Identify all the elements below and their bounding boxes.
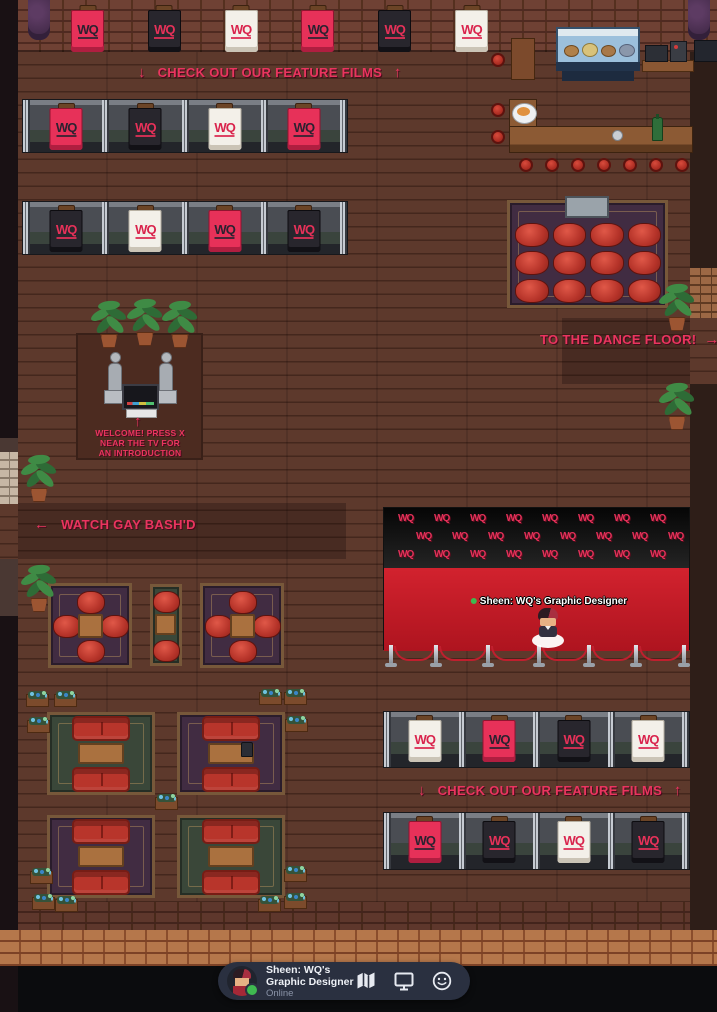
rail-panel: WQ — [466, 813, 534, 869]
sofa — [202, 819, 260, 844]
press-wall-wq-logo: WQ — [434, 513, 449, 524]
plant-pot — [669, 317, 686, 331]
rail-post — [102, 202, 109, 254]
player-avatar — [530, 604, 566, 648]
banner-body: WQ — [408, 720, 441, 762]
up-arrow-icon: ↑ — [394, 64, 402, 81]
press-wall-wq-logo: WQ — [614, 549, 629, 560]
pouf-seat — [229, 640, 257, 663]
left-arrow-icon: ← — [34, 516, 49, 533]
kettle — [241, 742, 253, 757]
rail-panel: WQ — [466, 712, 534, 767]
flower-box — [284, 896, 307, 909]
banner-body: WQ — [301, 10, 334, 52]
banner-body: WQ — [50, 108, 83, 150]
plant-pot — [31, 598, 48, 612]
wq-film-banner-dark: WQ — [148, 5, 181, 52]
pouf-seat — [253, 615, 281, 638]
press-wall-wq-logo: WQ — [650, 513, 665, 524]
wq-film-banner-white: WQ — [208, 103, 241, 150]
bar-stool — [649, 158, 663, 172]
banner-tagline — [489, 848, 509, 850]
poster-rail-c: WQWQWQWQ — [383, 711, 690, 768]
plant-pot — [101, 334, 118, 348]
banner-body: WQ — [557, 821, 590, 863]
player-info: Sheen: WQ's Graphic Designer Online — [266, 964, 354, 999]
espresso-station — [694, 40, 717, 62]
banner-tagline — [294, 135, 314, 137]
pastry — [619, 44, 635, 57]
wq-logo: WQ — [154, 24, 174, 36]
viewing-seat — [628, 279, 662, 303]
banner-tagline — [215, 237, 235, 239]
bottom-front-wall — [0, 930, 717, 966]
rail-post — [608, 712, 615, 767]
wq-film-banner-dark: WQ — [483, 816, 516, 863]
press-wall-wq-logo: WQ — [470, 549, 485, 560]
press-wall-wq-logo: WQ — [488, 531, 503, 542]
bar-stool — [491, 103, 505, 117]
banner-tagline — [638, 848, 658, 850]
potted-plant — [163, 298, 197, 348]
left-door-floor — [0, 504, 18, 559]
rail-post — [459, 813, 466, 869]
banner-tagline — [78, 37, 98, 39]
hanging-plant — [688, 0, 710, 40]
sign-feature-films-top: ↓ CHECK OUT OUR FEATURE FILMS ↑ — [138, 64, 402, 81]
pastry — [582, 43, 598, 57]
banner-body: WQ — [208, 108, 241, 150]
wq-logo: WQ — [135, 224, 155, 236]
sofa — [72, 716, 130, 741]
banner-body: WQ — [225, 10, 258, 52]
rail-panel: WQ — [268, 202, 340, 254]
left-door-brick — [0, 452, 18, 504]
pastry — [564, 45, 579, 57]
viewing-seat — [515, 251, 549, 275]
banner-body: WQ — [287, 108, 320, 150]
banner-body: WQ — [129, 108, 162, 150]
flower-box — [54, 694, 77, 707]
emoji-icon[interactable] — [430, 969, 454, 993]
wq-logo: WQ — [638, 734, 658, 746]
display-case-front — [562, 71, 634, 81]
flower-box — [32, 897, 55, 910]
flower-box — [259, 692, 282, 705]
wq-film-banner-pink: WQ — [483, 715, 516, 762]
pouf-seat — [153, 640, 180, 662]
wq-film-banner-dark: WQ — [632, 816, 665, 863]
stanchion-post — [682, 645, 686, 664]
banner-body: WQ — [378, 10, 411, 52]
player-toolbar[interactable]: Sheen: WQ's Graphic Designer Online — [218, 962, 470, 1000]
poster-rail-d: WQWQWQWQ — [383, 812, 690, 870]
display-case-top — [558, 29, 638, 36]
stanchion-post — [389, 645, 393, 664]
viewing-seat — [553, 279, 587, 303]
poster-rail-a: WQWQWQWQ — [22, 99, 348, 153]
viewing-seat — [628, 223, 662, 247]
banner-tagline — [462, 37, 482, 39]
rail-panel: WQ — [30, 100, 102, 152]
flower-box — [30, 871, 53, 884]
wq-logo: WQ — [564, 835, 584, 847]
online-dot — [471, 598, 477, 604]
coffee-table — [208, 846, 254, 867]
wq-film-banner-pink: WQ — [287, 103, 320, 150]
banner-tagline — [135, 237, 155, 239]
press-wall-wq-logo: WQ — [542, 549, 557, 560]
plant-pot — [31, 488, 48, 502]
wq-logo: WQ — [308, 24, 328, 36]
online-status-dot — [245, 983, 259, 997]
cafe-table — [155, 614, 176, 635]
wq-film-banner-dark: WQ — [287, 205, 320, 252]
cafe-table — [230, 614, 255, 638]
flower-box — [155, 797, 178, 810]
bar-stool — [491, 130, 505, 144]
rail-panel: WQ — [268, 100, 340, 152]
press-wall-logo-panel: WQWQWQWQWQWQWQWQWQWQWQWQWQWQWQWQWQWQWQWQ… — [384, 508, 689, 568]
hanging-plant — [28, 0, 50, 40]
banner-tagline — [564, 747, 584, 749]
sofa — [202, 767, 260, 792]
stanchion-rope — [439, 646, 487, 661]
rail-post — [459, 712, 466, 767]
press-wall-wq-logo: WQ — [452, 531, 467, 542]
press-wall-wq-logo: WQ — [668, 531, 683, 542]
rail-post — [182, 202, 189, 254]
rail-panel: WQ — [391, 813, 459, 869]
press-wall-wq-logo: WQ — [434, 549, 449, 560]
banner-body: WQ — [455, 10, 488, 52]
rail-post — [682, 712, 689, 767]
wq-logo: WQ — [294, 224, 314, 236]
press-wall-wq-logo: WQ — [560, 531, 575, 542]
rail-post — [261, 202, 268, 254]
banner-body: WQ — [483, 720, 516, 762]
pouf-seat — [77, 640, 105, 663]
banner-body: WQ — [557, 720, 590, 762]
banner-tagline — [215, 135, 235, 137]
potted-plant — [660, 281, 694, 331]
wq-logo: WQ — [56, 224, 76, 236]
bar-stool — [571, 158, 585, 172]
press-wall-wq-logo: WQ — [398, 549, 413, 560]
cafe-table — [78, 614, 103, 638]
press-wall-wq-logo: WQ — [398, 513, 413, 524]
food-display-case — [556, 27, 640, 71]
flower-box — [26, 694, 49, 707]
virtual-space-viewport: WQWQWQWQWQWQ ↓ CHECK OUT OUR FEATURE FIL… — [0, 0, 717, 1012]
viewing-seat — [590, 279, 624, 303]
sofa — [72, 870, 130, 895]
wq-film-banner-white: WQ — [408, 715, 441, 762]
press-wall-wq-logo: WQ — [506, 549, 521, 560]
rail-panel: WQ — [540, 813, 608, 869]
bar-stool — [597, 158, 611, 172]
banner-tagline — [638, 747, 658, 749]
viewing-seat — [515, 223, 549, 247]
banner-body: WQ — [129, 210, 162, 252]
player-name: Sheen: WQ's Graphic Designer — [266, 964, 354, 988]
cup — [612, 130, 623, 141]
wq-film-banner-pink: WQ — [50, 103, 83, 150]
viewing-seat — [590, 251, 624, 275]
banner-tagline — [564, 848, 584, 850]
wq-film-banner-white: WQ — [225, 5, 258, 52]
rail-panel: WQ — [391, 712, 459, 767]
press-wall-wq-logo: WQ — [596, 531, 611, 542]
press-wall-wq-logo: WQ — [470, 513, 485, 524]
wq-film-banner-white: WQ — [632, 715, 665, 762]
rail-panel: WQ — [109, 100, 181, 152]
wq-logo: WQ — [564, 734, 584, 746]
sofa — [72, 767, 130, 792]
player-avatar-chip[interactable] — [227, 966, 257, 996]
microwave — [645, 45, 668, 62]
bar-pillar — [511, 38, 535, 80]
banner-body: WQ — [483, 821, 516, 863]
intro-tv[interactable] — [122, 384, 159, 410]
rail-post — [23, 202, 30, 254]
wq-logo: WQ — [384, 24, 404, 36]
player-overhead-name: Sheen: WQ's Graphic Designer — [471, 596, 627, 607]
wq-logo: WQ — [638, 835, 658, 847]
pouf-seat — [101, 615, 129, 638]
wq-logo: WQ — [231, 24, 251, 36]
plant-pot — [137, 332, 154, 346]
flower-box — [55, 899, 78, 912]
poster-rail-b: WQWQWQWQ — [22, 201, 348, 255]
wq-film-banner-pink: WQ — [208, 205, 241, 252]
wq-logo: WQ — [415, 734, 435, 746]
right-door-floor — [690, 318, 717, 384]
food-plate — [512, 103, 537, 124]
press-wall-wq-logo: WQ — [632, 531, 647, 542]
banner-body: WQ — [71, 10, 104, 52]
potted-plant — [128, 296, 162, 346]
potted-plant — [22, 562, 56, 612]
sofa — [202, 870, 260, 895]
pastry — [601, 45, 616, 57]
sofa — [202, 716, 260, 741]
viewing-screen — [565, 196, 609, 218]
banner-body: WQ — [287, 210, 320, 252]
banner-tagline — [56, 237, 76, 239]
wq-logo: WQ — [415, 835, 435, 847]
press-wall-wq-logo: WQ — [578, 549, 593, 560]
sign-dance-floor: TO THE DANCE FLOOR! → — [540, 331, 717, 348]
rail-panel: WQ — [615, 712, 683, 767]
viewing-seat — [553, 223, 587, 247]
bar-stool — [491, 53, 505, 67]
flower-box — [285, 719, 308, 732]
stanchion-post — [434, 645, 438, 664]
banner-tagline — [231, 37, 251, 39]
stanchion-post — [486, 645, 490, 664]
rail-post — [340, 100, 347, 152]
banner-tagline — [415, 747, 435, 749]
rail-panel: WQ — [189, 100, 261, 152]
wq-film-banner-dark: WQ — [557, 715, 590, 762]
wq-logo: WQ — [489, 835, 509, 847]
banner-body: WQ — [408, 821, 441, 863]
potted-plant — [92, 298, 126, 348]
right-wall — [690, 52, 717, 930]
avatar-face — [540, 618, 556, 626]
sign-watch-gay-bashd: ← WATCH GAY BASH'D — [34, 516, 196, 533]
rail-panel: WQ — [615, 813, 683, 869]
rail-post — [608, 813, 615, 869]
pouf-seat — [53, 615, 81, 638]
rail-panel: WQ — [189, 202, 261, 254]
wq-film-banner-pink: WQ — [301, 5, 334, 52]
banner-body: WQ — [632, 720, 665, 762]
rail-panel: WQ — [30, 202, 102, 254]
rail-post — [682, 813, 689, 869]
sign-welcome: WELCOME! PRESS X NEAR THE TV FOR AN INTR… — [87, 428, 193, 458]
wq-logo: WQ — [214, 224, 234, 236]
wq-logo: WQ — [56, 122, 76, 134]
banner-tagline — [489, 747, 509, 749]
wine-bottle — [652, 117, 663, 141]
rail-post — [384, 712, 391, 767]
plant-pot — [172, 334, 189, 348]
rail-panel: WQ — [109, 202, 181, 254]
press-wall-wq-logo: WQ — [506, 513, 521, 524]
flower-box — [27, 720, 50, 733]
banner-tagline — [154, 37, 174, 39]
flower-box — [258, 899, 281, 912]
viewing-seat — [590, 223, 624, 247]
banner-body: WQ — [208, 210, 241, 252]
rail-post — [533, 712, 540, 767]
bottom-inner-wall — [18, 902, 690, 930]
wq-logo: WQ — [214, 122, 234, 134]
bar-stool — [675, 158, 689, 172]
viewing-seat — [553, 251, 587, 275]
wq-film-banner-dark: WQ — [129, 103, 162, 150]
rail-post — [182, 100, 189, 152]
rail-post — [384, 813, 391, 869]
screen-share-icon[interactable] — [392, 969, 416, 993]
coffee-machine — [670, 41, 687, 62]
pouf-seat — [205, 615, 233, 638]
player-status: Online — [266, 988, 354, 999]
bar-stool — [623, 158, 637, 172]
wq-film-banner-white: WQ — [129, 205, 162, 252]
pouf-seat — [153, 591, 180, 613]
display-case-base — [556, 62, 640, 71]
banner-tagline — [294, 237, 314, 239]
coffee-table — [78, 743, 124, 764]
sign-feature-films-bottom: ↓ CHECK OUT OUR FEATURE FILMS ↑ — [418, 782, 682, 799]
bar-stool — [545, 158, 559, 172]
coffee-table — [78, 846, 124, 867]
press-wall-wq-logo: WQ — [542, 513, 557, 524]
press-wall-wq-logo: WQ — [416, 531, 431, 542]
map-icon[interactable] — [354, 969, 378, 993]
viewing-seats — [515, 223, 661, 303]
wq-film-banner-dark: WQ — [50, 205, 83, 252]
right-arrow-icon: → — [704, 331, 717, 348]
banner-tagline — [135, 135, 155, 137]
rail-post — [340, 202, 347, 254]
banner-body: WQ — [148, 10, 181, 52]
press-wall-wq-logo: WQ — [524, 531, 539, 542]
sofa — [72, 819, 130, 844]
banner-tagline — [308, 37, 328, 39]
rail-post — [23, 100, 30, 152]
pouf-seat — [77, 591, 105, 614]
banner-body: WQ — [632, 821, 665, 863]
wq-logo: WQ — [461, 24, 481, 36]
press-wall-wq-logo: WQ — [650, 549, 665, 560]
viewing-seat — [515, 279, 549, 303]
rail-panel: WQ — [540, 712, 608, 767]
wq-logo: WQ — [489, 734, 509, 746]
stanchion-post — [634, 645, 638, 664]
banner-tagline — [415, 848, 435, 850]
wq-logo: WQ — [77, 24, 97, 36]
banner-body: WQ — [50, 210, 83, 252]
down-arrow-icon: ↓ — [418, 782, 426, 799]
flower-box — [284, 692, 307, 705]
up-arrow-icon: ↑ — [674, 782, 682, 799]
press-wall-wq-logo: WQ — [578, 513, 593, 524]
wq-logo: WQ — [135, 122, 155, 134]
bar-counter-horizontal — [509, 126, 693, 153]
pouf-seat — [229, 591, 257, 614]
banner-tagline — [56, 135, 76, 137]
rail-post — [533, 813, 540, 869]
right-door-brick — [690, 268, 717, 318]
viewing-seat — [628, 251, 662, 275]
wq-film-banner-white: WQ — [557, 816, 590, 863]
wq-film-banner-dark: WQ — [378, 5, 411, 52]
potted-plant — [660, 380, 694, 430]
stanchion-post — [587, 645, 591, 664]
wq-film-banner-pink: WQ — [71, 5, 104, 52]
rail-post — [261, 100, 268, 152]
rail-post — [102, 100, 109, 152]
flower-box — [284, 869, 307, 882]
wq-logo: WQ — [294, 122, 314, 134]
down-arrow-icon: ↓ — [138, 64, 146, 81]
bar-stool — [519, 158, 533, 172]
wq-film-banner-white: WQ — [455, 5, 488, 52]
wq-film-banner-pink: WQ — [408, 816, 441, 863]
banner-tagline — [385, 37, 405, 39]
press-wall-wq-logo: WQ — [614, 513, 629, 524]
potted-plant — [22, 452, 56, 502]
plant-pot — [669, 416, 686, 430]
